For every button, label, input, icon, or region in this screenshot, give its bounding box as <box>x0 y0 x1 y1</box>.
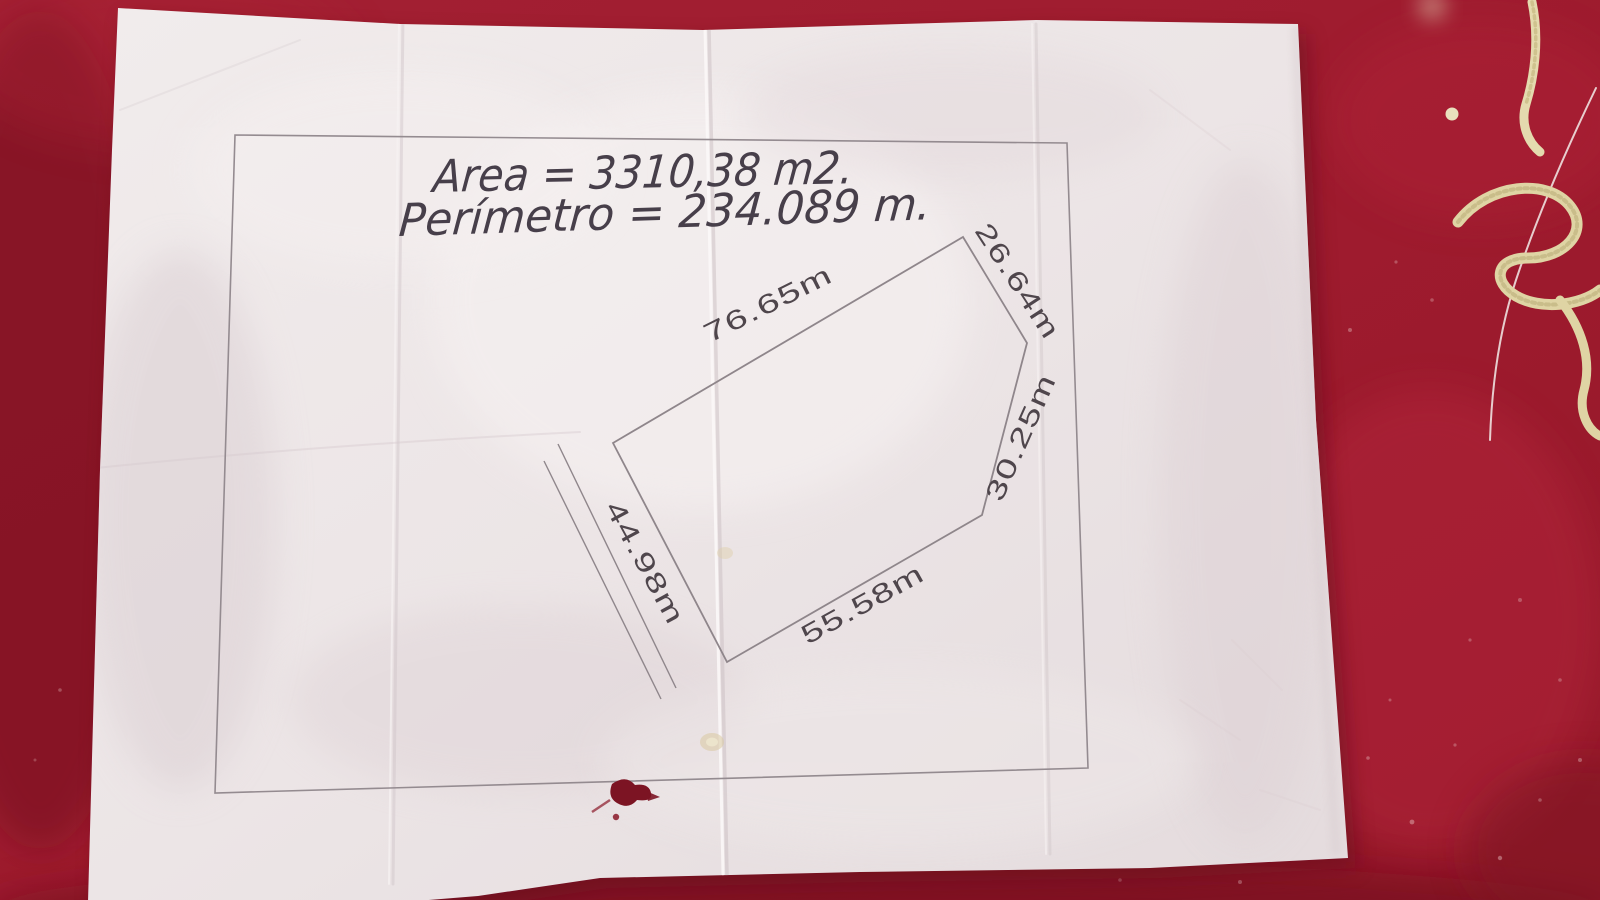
handwriting: Area = 3310,38 m2. Perímetro = 234.089 m… <box>397 141 933 247</box>
photo-stage: Area = 3310,38 m2. Perímetro = 234.089 m… <box>0 0 1600 900</box>
stain-upper <box>717 547 733 559</box>
stain-lower-core <box>706 738 718 747</box>
paper-sheet <box>85 8 1348 900</box>
photo: Area = 3310,38 m2. Perímetro = 234.089 m… <box>0 0 1600 900</box>
embroidery-knot <box>1446 108 1459 121</box>
